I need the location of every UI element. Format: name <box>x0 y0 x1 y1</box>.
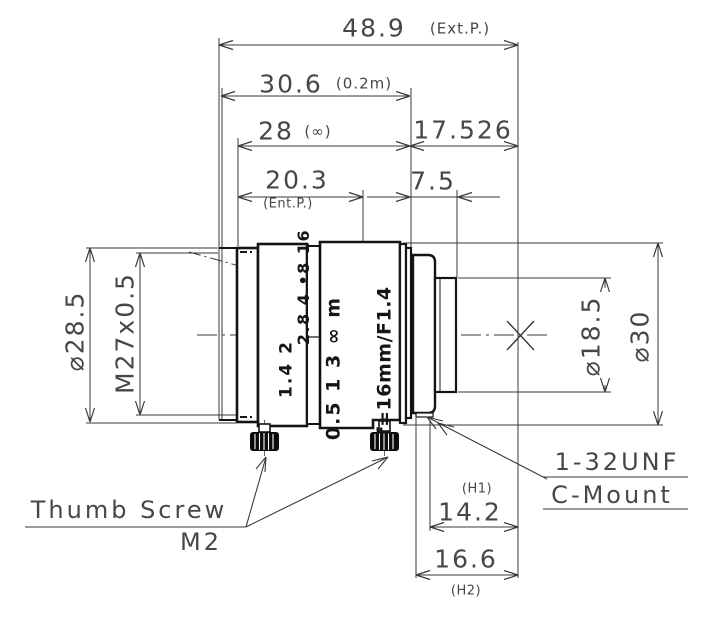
dim-infinity: 28 <box>258 119 294 144</box>
dim-near-focus-note: (0.2m) <box>336 77 392 92</box>
lens-technical-drawing: 48.9 (Ext.P.) 30.6 (0.2m) 28 (∞) 17.526 … <box>0 0 720 628</box>
dim-total-length-note: (Ext.P.) <box>430 22 490 37</box>
mount-type-label: C-Mount <box>551 483 673 507</box>
flange-undercut <box>416 413 433 417</box>
mount-thread <box>435 278 456 392</box>
thumb-screw-neck <box>259 424 270 432</box>
screw-leaders <box>246 457 388 527</box>
thumb-screw-size: M2 <box>180 530 222 554</box>
mount-flange <box>413 255 435 413</box>
dim-flange-focal: 17.526 <box>413 118 512 143</box>
dim-infinity-note: (∞) <box>304 125 331 140</box>
thumb-screw-label: Thumb Screw <box>31 498 228 522</box>
dim-ent-pupil: 20.3 <box>265 168 329 193</box>
dim-front-thread: M27x0.5 <box>113 272 138 394</box>
dim-h1: 14.2 <box>438 500 502 525</box>
mount-leader <box>427 417 547 479</box>
dim-total-length: 48.9 <box>342 16 406 41</box>
dim-thread-length: 7.5 <box>410 169 456 194</box>
front-ring <box>237 248 258 422</box>
dim-h2-note: (H2) <box>451 585 481 598</box>
rear-ring-2 <box>406 248 411 418</box>
dim-near-focus: 30.6 <box>259 72 323 97</box>
focus-scale: 0.5 1 3 ∞ m <box>325 296 344 440</box>
screw-leader-arrows <box>256 457 388 472</box>
aperture-scale-lower: 1.4 2 <box>279 340 296 398</box>
mount-thread-label: 1-32UNF <box>555 450 680 474</box>
dim-h1-note: (H1) <box>462 483 492 496</box>
dim-body-diameter: ⌀30 <box>628 310 653 363</box>
aperture-scale-upper: 2.8 4 •8 16 <box>296 229 312 345</box>
drawing-linework <box>0 0 720 628</box>
lens-name-marking: f=16mm/F1.4 <box>376 286 395 435</box>
dim-mount-diameter: ⌀18.5 <box>579 296 604 377</box>
dim-front-diameter: ⌀28.5 <box>63 291 88 372</box>
dim-ent-pupil-note: (Ent.P.) <box>263 198 313 211</box>
dim-h2: 16.6 <box>434 547 498 572</box>
